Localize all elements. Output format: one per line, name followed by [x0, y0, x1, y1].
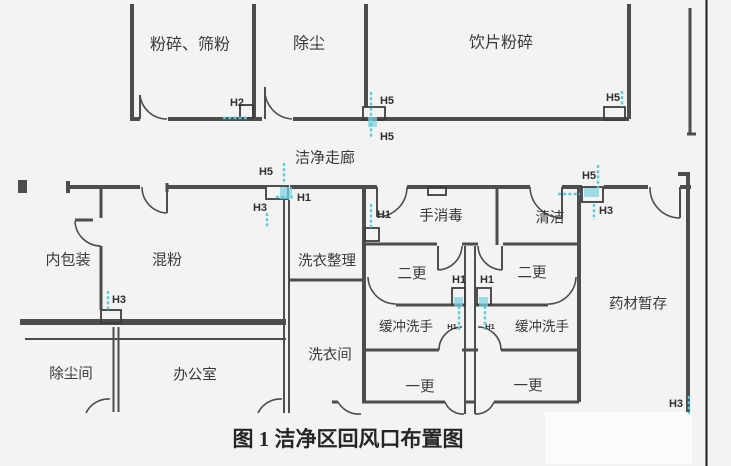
room-label-herb-storage: 药材暂存: [609, 295, 667, 312]
air-outlet-fill: [479, 297, 488, 307]
marker-h2-crushing: H2: [230, 97, 244, 109]
air-outlet-fill: [454, 297, 463, 307]
marker-h5-top-wall-below: H5: [380, 131, 394, 143]
watermark-patch: [545, 412, 692, 464]
room-label-first-change-left: 一更: [406, 379, 435, 395]
marker-h1-center-right: H1: [480, 274, 494, 286]
figure-caption: 图 1 洁净区回风口布置图: [233, 427, 464, 451]
room-label-decoction-crushing: 饮片粉碎: [469, 34, 533, 52]
room-label-cleaning: 清洁: [536, 209, 565, 226]
floor-plan-diagram: H2 H5 H5 H5 H5 H1 H3 H5 H3 H1 H3 H1 H1 H…: [0, 0, 731, 466]
marker-h3-corridor-left: H3: [253, 202, 267, 214]
air-outlet-fill: [584, 188, 599, 197]
marker-h1-center-left: H1: [452, 274, 466, 286]
marker-h5-top-wall-above: H5: [380, 95, 394, 107]
marker-h1-hand-disinfection: H1: [377, 209, 391, 221]
marker-h3-powder-mixing: H3: [112, 294, 126, 306]
room-label-crushing-sieving: 粉碎、筛粉: [150, 35, 230, 54]
room-label-dust-removal: 除尘: [293, 35, 325, 53]
marker-h5-decoction-right: H5: [606, 92, 620, 104]
room-label-second-change-right: 二更: [518, 265, 547, 281]
room-label-dust-room: 除尘间: [49, 365, 93, 382]
floor-plan-screenshot: H2 H5 H5 H5 H5 H1 H3 H5 H3 H1 H3 H1 H1 H…: [0, 0, 731, 466]
marker-h5-corridor-left: H5: [259, 166, 273, 178]
marker-h1-buffer-right: H1: [485, 322, 495, 331]
room-label-first-change-right: 一更: [514, 378, 543, 394]
corridor-label: 洁净走廊: [295, 149, 355, 166]
marker-h1-buffer-left: H1: [447, 322, 457, 331]
room-label-laundry-sorting: 洗衣整理: [298, 252, 356, 269]
wall-stub-left: [18, 180, 27, 193]
marker-h3-herb-storage: H3: [669, 398, 683, 410]
room-label-laundry-room: 洗衣间: [308, 346, 352, 363]
marker-h3-corridor-right: H3: [599, 205, 613, 217]
room-label-buffer-handwash-right: 缓冲洗手: [515, 319, 569, 334]
air-outlet-fill: [368, 117, 377, 127]
room-label-office: 办公室: [173, 366, 217, 383]
marker-h5-corridor-right: H5: [582, 170, 596, 182]
room-label-second-change-left: 二更: [398, 266, 427, 282]
room-label-buffer-handwash-left: 缓冲洗手: [379, 319, 433, 334]
room-label-hand-disinfection: 手消毒: [419, 207, 463, 224]
marker-h1-corridor-left: H1: [297, 192, 311, 204]
room-label-powder-mixing: 混粉: [152, 251, 182, 268]
room-label-inner-packaging: 内包装: [45, 251, 90, 268]
